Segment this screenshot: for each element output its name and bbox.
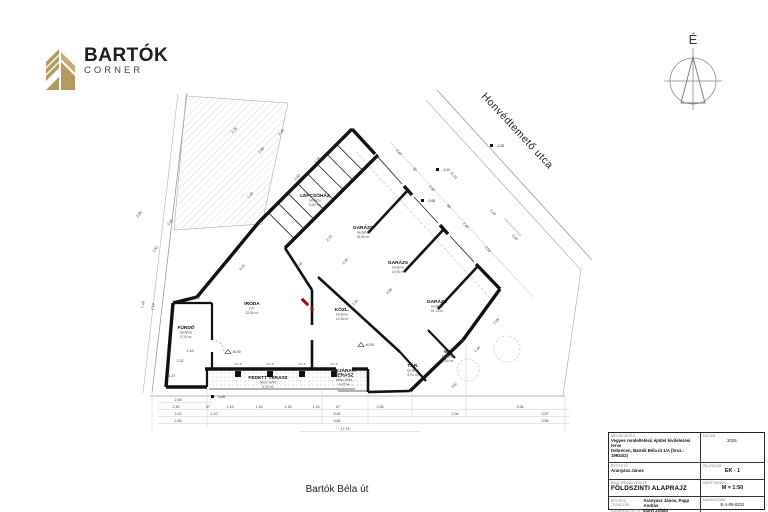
dim-label: 1,53 [151, 245, 158, 253]
room-area: 2,55 m² [442, 359, 454, 363]
dim-label: 2,23 [175, 412, 182, 416]
dim-label: 90 [446, 203, 452, 209]
room-area: 14,95 m² [391, 270, 405, 274]
date-value: 2025. [703, 438, 762, 443]
dim-label: 11,31 [449, 171, 458, 180]
level-value: -0,10 [443, 168, 451, 172]
dim-label: 2,51 [351, 298, 359, 306]
room-area: 5,15 m² [180, 335, 192, 339]
dim-label: 2,40 [428, 184, 436, 192]
room-area: 15,56 m² [356, 235, 370, 239]
dim-label: 9,84 [334, 419, 341, 423]
dim-label: 7,19 [150, 303, 155, 311]
dim-label: pm 0 [267, 362, 274, 366]
title-block: megnevezés Vegyes rendeltetésű épület ki… [608, 432, 765, 510]
dim-label: 2,06 [492, 317, 500, 325]
dim-label: 3,97 [450, 381, 458, 389]
dim-label: 57 [206, 405, 210, 409]
level-value: ±0,00 [366, 343, 374, 347]
dim-label: 2,16 [187, 349, 194, 353]
room-area: 8,50 m² [309, 203, 321, 207]
project-line2: Debrecen, Bartók Béla út 1/A (hrsz.: 199… [611, 448, 698, 458]
editor-value: Ványi Zoltán [643, 508, 669, 512]
dim-label: 3,36 [377, 405, 384, 409]
dim-label: 2,46 [175, 419, 182, 423]
dim-label: 1,47 [169, 374, 176, 378]
designers-value: Aranyász János, Papp András [644, 498, 698, 508]
level-value: -0,08 [428, 199, 436, 203]
terrace-column [299, 371, 305, 377]
dim-label: 2,45 [173, 405, 180, 409]
dim-label: 2,10 [295, 261, 303, 269]
dim-label: 3,87 [542, 412, 549, 416]
level-value: -0,08 [218, 395, 226, 399]
dim-label: 2,60 [484, 245, 492, 253]
dim-label: 3,56 [542, 419, 549, 423]
north-arrow: É [664, 32, 722, 110]
dim-label: pm 0 [299, 362, 306, 366]
dim-label: pm 0 [331, 362, 338, 366]
room-area: 18,14 m² [430, 309, 444, 313]
drawing-sheet: BARTÓK CORNER LÉPCSŐHÁZkerámia8,50 m²GAR… [0, 0, 768, 512]
dim-label: 57 [336, 405, 340, 409]
dim-label: 90 [412, 166, 418, 172]
dim-label: 4,01 [238, 263, 246, 271]
dim-label: 1,32 [177, 359, 184, 363]
dim-label: 2,04 [452, 412, 459, 416]
dim-label: 2,20 [341, 257, 349, 265]
room-area: 8,94 m² [407, 373, 419, 377]
dim-label: 2,45 [175, 398, 182, 402]
dim-label: 7,36 [193, 296, 200, 300]
dim-label: 1,40 [473, 345, 481, 353]
north-label: É [689, 32, 698, 47]
dim-label: 2,40 [395, 148, 403, 156]
dim-label: 3,58 [385, 287, 393, 295]
dim-label: 1,15 [285, 405, 292, 409]
dim-label: 17,74 [341, 427, 350, 431]
dim-label: 2,70 [325, 234, 333, 242]
dim-label: 5,84 [334, 412, 341, 416]
job-no-value: E-1-09-0222 [703, 502, 762, 507]
terrace-column [235, 371, 241, 377]
room-area: 6,35 m² [262, 385, 274, 389]
room-area: 32,85 m² [245, 311, 259, 315]
drawing-title: FÖLDSZINTI ALAPRAJZ [611, 485, 698, 492]
dim-label: 2,85 [135, 210, 142, 218]
designers-label: építész tervezők [611, 499, 642, 507]
room-area: 4,42 m² [338, 382, 350, 386]
dim-label: 3,36 [517, 405, 524, 409]
client-value: Aranyász János [611, 468, 698, 473]
street-name-bottom: Bartók Béla út [306, 484, 369, 495]
level-value: -0,28 [497, 144, 505, 148]
scale-value: M = 1:50 [703, 485, 762, 491]
project-line1: Vegyes rendeltetésű épület kivitelezési … [611, 438, 698, 448]
dim-label: 1,15 [227, 405, 234, 409]
dim-label: 1,15 [313, 405, 320, 409]
dim-label: 1,15 [256, 405, 263, 409]
room-area: 14,38 m² [335, 317, 349, 321]
street-name-top: Honvédtemető utca [479, 90, 556, 171]
dim-label: 2,40 [462, 221, 470, 229]
level-value: ±0,00 [233, 350, 241, 354]
drawing-no-value: EK - 1 [703, 468, 762, 474]
dim-label: pm 0 [235, 362, 242, 366]
dim-label: 1,10 [211, 412, 218, 416]
dim-label: 7,49 [140, 301, 145, 309]
dim-label: 2,40 [489, 208, 497, 216]
dim-label: 2,50 [166, 218, 173, 226]
